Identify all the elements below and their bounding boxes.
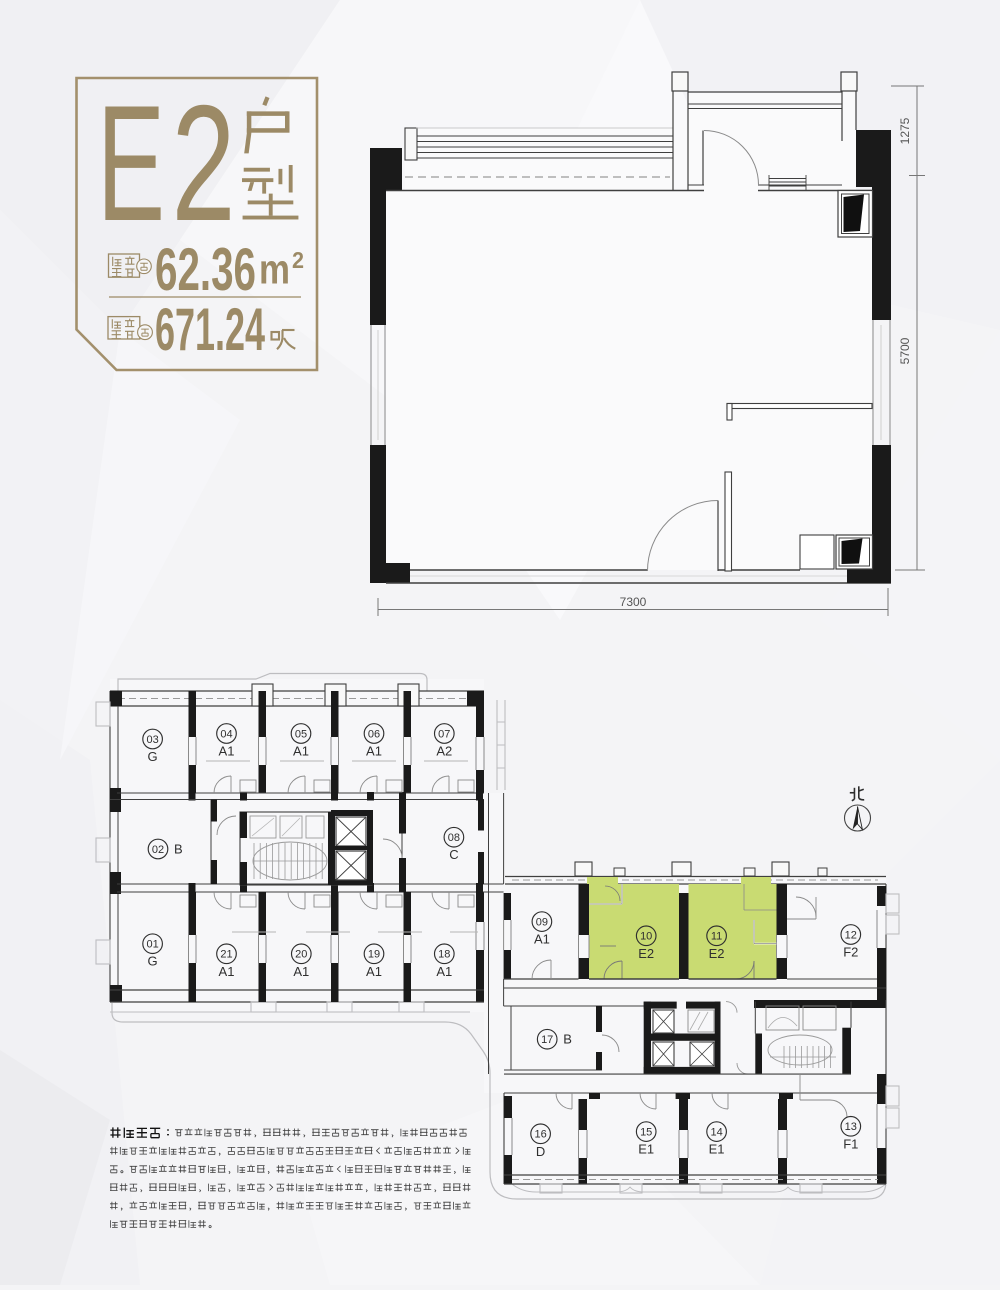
svg-text:2: 2 <box>172 71 236 255</box>
svg-text:08: 08 <box>448 832 460 844</box>
svg-text:E2: E2 <box>709 946 725 961</box>
svg-text:1275: 1275 <box>898 117 912 144</box>
svg-text:F1: F1 <box>843 1136 858 1151</box>
svg-text:G: G <box>148 749 158 764</box>
svg-text:A1: A1 <box>293 964 309 979</box>
svg-text:A2: A2 <box>436 744 452 759</box>
svg-text:D: D <box>536 1144 545 1159</box>
svg-text:A1: A1 <box>219 744 235 759</box>
svg-text:E1: E1 <box>709 1142 725 1157</box>
svg-text:62.36: 62.36 <box>155 236 256 303</box>
svg-text:14: 14 <box>710 1126 722 1138</box>
svg-text:18: 18 <box>438 949 450 961</box>
svg-text:A1: A1 <box>366 744 382 759</box>
svg-text:671.24: 671.24 <box>155 296 265 363</box>
svg-text:09: 09 <box>536 916 548 928</box>
svg-text:B: B <box>174 842 183 857</box>
svg-text:12: 12 <box>845 929 857 941</box>
svg-text:20: 20 <box>295 949 307 961</box>
svg-text:07: 07 <box>438 728 450 740</box>
svg-text:m: m <box>259 246 290 293</box>
svg-text:C: C <box>449 847 458 862</box>
svg-text:A1: A1 <box>366 964 382 979</box>
svg-text:05: 05 <box>295 728 307 740</box>
svg-text:7300: 7300 <box>620 595 647 609</box>
svg-text:2: 2 <box>292 247 304 273</box>
svg-text:E: E <box>97 71 165 255</box>
svg-text:06: 06 <box>368 728 380 740</box>
svg-text:01: 01 <box>146 939 158 951</box>
svg-text:B: B <box>563 1032 572 1047</box>
svg-text:A1: A1 <box>534 932 550 947</box>
svg-text:A1: A1 <box>293 744 309 759</box>
svg-text:17: 17 <box>541 1034 553 1046</box>
svg-text:13: 13 <box>845 1121 857 1133</box>
svg-text:5700: 5700 <box>898 337 912 364</box>
svg-text:04: 04 <box>220 728 232 740</box>
svg-text:16: 16 <box>534 1129 546 1141</box>
svg-text:E2: E2 <box>638 946 654 961</box>
svg-text:21: 21 <box>220 949 232 961</box>
svg-text:15: 15 <box>640 1126 652 1138</box>
svg-text:A1: A1 <box>219 964 235 979</box>
svg-text:10: 10 <box>640 931 652 943</box>
svg-text:F2: F2 <box>843 945 858 960</box>
svg-text:G: G <box>148 954 158 969</box>
svg-text:E1: E1 <box>638 1142 654 1157</box>
svg-text:02: 02 <box>152 844 164 856</box>
svg-text:03: 03 <box>146 734 158 746</box>
svg-text:A1: A1 <box>436 964 452 979</box>
svg-text:19: 19 <box>368 949 380 961</box>
svg-text:11: 11 <box>711 931 722 943</box>
